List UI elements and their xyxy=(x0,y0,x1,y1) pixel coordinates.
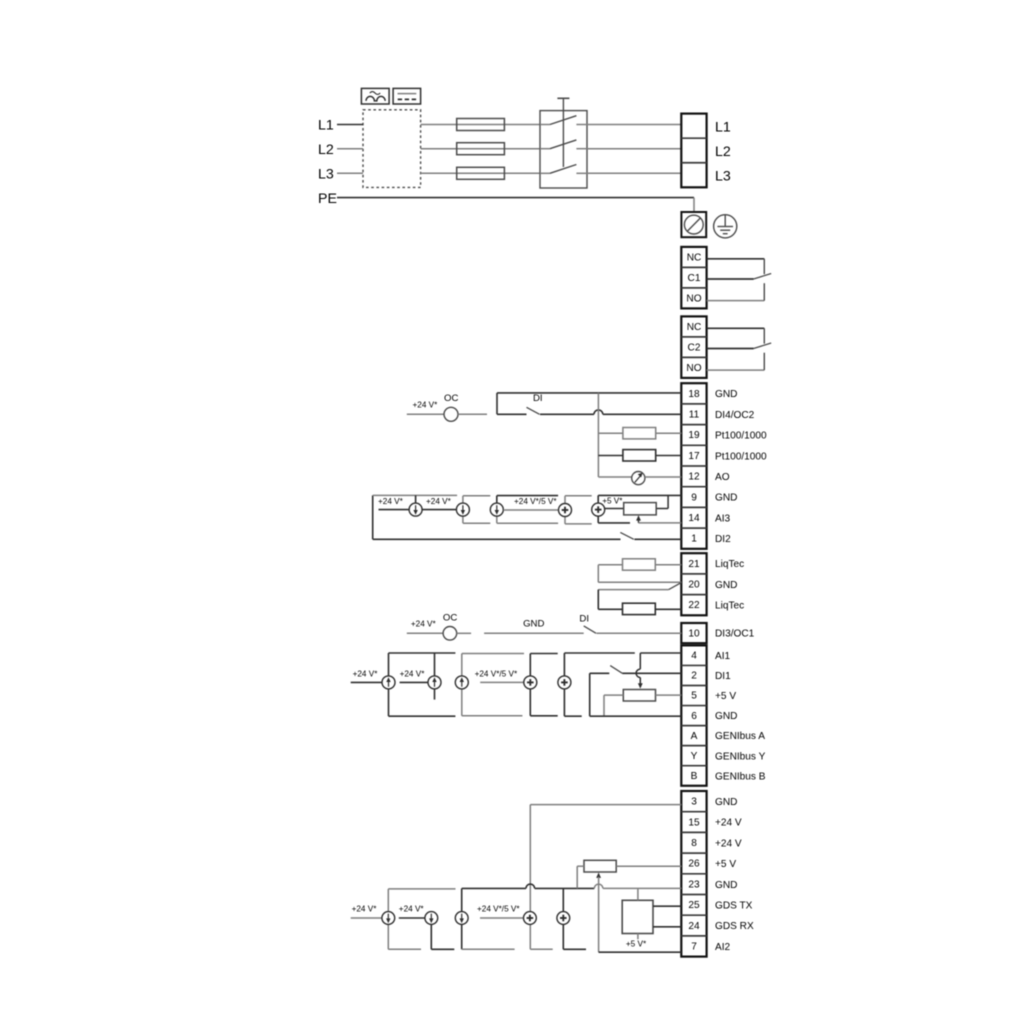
svg-text:5: 5 xyxy=(691,691,697,702)
svg-text:+24 V*: +24 V* xyxy=(426,497,452,506)
svg-text:NO: NO xyxy=(686,293,701,304)
svg-text:AI3: AI3 xyxy=(715,513,731,524)
svg-text:GENIbus A: GENIbus A xyxy=(715,731,765,742)
svg-text:8: 8 xyxy=(691,838,697,849)
svg-text:GND: GND xyxy=(715,880,737,891)
svg-text:+24 V: +24 V xyxy=(715,818,742,829)
svg-text:DI4/OC2: DI4/OC2 xyxy=(715,410,755,421)
svg-text:GND: GND xyxy=(715,711,737,722)
svg-text:+24 V*: +24 V* xyxy=(411,619,437,628)
svg-text:DI3/OC1: DI3/OC1 xyxy=(715,629,755,640)
svg-text:24: 24 xyxy=(688,921,700,932)
svg-text:7: 7 xyxy=(691,941,697,952)
svg-text:GDS TX: GDS TX xyxy=(715,900,753,911)
svg-text:+24 V*/5 V*: +24 V*/5 V* xyxy=(475,669,518,678)
svg-text:14: 14 xyxy=(688,513,700,524)
svg-text:9: 9 xyxy=(691,492,697,503)
svg-text:18: 18 xyxy=(688,389,700,400)
svg-text:+24 V*: +24 V* xyxy=(400,669,426,678)
svg-text:+24 V: +24 V xyxy=(715,838,742,849)
svg-text:Pt100/1000: Pt100/1000 xyxy=(715,431,767,442)
svg-text:+24 V*: +24 V* xyxy=(413,401,439,410)
svg-text:L1: L1 xyxy=(715,119,731,135)
svg-text:GENIbus B: GENIbus B xyxy=(715,771,766,782)
svg-text:AI1: AI1 xyxy=(715,651,731,662)
svg-text:DI: DI xyxy=(579,613,589,624)
svg-text:GND: GND xyxy=(715,389,737,400)
svg-text:OC: OC xyxy=(444,393,458,404)
svg-text:10: 10 xyxy=(688,628,700,639)
svg-text:Pt100/1000: Pt100/1000 xyxy=(715,451,767,462)
svg-text:3: 3 xyxy=(691,797,697,808)
svg-text:12: 12 xyxy=(688,472,700,483)
svg-text:+24 V*: +24 V* xyxy=(352,905,378,914)
svg-text:NC: NC xyxy=(687,322,702,333)
svg-text:20: 20 xyxy=(688,579,700,590)
svg-text:4: 4 xyxy=(691,651,697,662)
svg-text:+24 V*: +24 V* xyxy=(353,669,379,678)
svg-text:23: 23 xyxy=(688,879,700,890)
svg-text:17: 17 xyxy=(688,451,700,462)
svg-text:21: 21 xyxy=(688,559,700,570)
svg-text:+24 V*: +24 V* xyxy=(399,905,425,914)
svg-text:LiqTec: LiqTec xyxy=(715,559,744,570)
svg-text:+5 V*: +5 V* xyxy=(602,497,623,506)
svg-text:GENIbus Y: GENIbus Y xyxy=(715,751,766,762)
svg-text:L1: L1 xyxy=(318,118,334,134)
svg-text:11: 11 xyxy=(689,409,700,420)
svg-text:+24 V*/5 V*: +24 V*/5 V* xyxy=(514,497,557,506)
svg-text:+5 V: +5 V xyxy=(715,691,736,702)
svg-text:GND: GND xyxy=(523,618,544,629)
svg-text:C1: C1 xyxy=(688,273,701,284)
svg-text:19: 19 xyxy=(688,430,700,441)
svg-text:DI2: DI2 xyxy=(715,534,731,545)
svg-text:6: 6 xyxy=(691,711,697,722)
svg-text:GND: GND xyxy=(715,493,737,504)
svg-text:1: 1 xyxy=(691,534,697,545)
svg-text:L2: L2 xyxy=(318,142,334,158)
svg-text:GND: GND xyxy=(715,580,737,591)
svg-text:AI2: AI2 xyxy=(715,942,731,953)
svg-text:2: 2 xyxy=(691,671,697,682)
svg-text:+24 V*: +24 V* xyxy=(378,497,404,506)
svg-text:Y: Y xyxy=(691,751,698,762)
svg-text:+5 V: +5 V xyxy=(715,859,736,870)
svg-text:22: 22 xyxy=(688,600,700,611)
svg-text:PE: PE xyxy=(318,191,337,207)
svg-text:OC: OC xyxy=(443,612,457,623)
svg-text:L3: L3 xyxy=(715,169,731,185)
svg-text:25: 25 xyxy=(688,900,700,911)
svg-text:C2: C2 xyxy=(688,342,701,353)
svg-text:GDS RX: GDS RX xyxy=(715,921,754,932)
svg-text:L2: L2 xyxy=(715,144,731,160)
svg-text:+24 V*/5 V*: +24 V*/5 V* xyxy=(477,905,520,914)
svg-text:AO: AO xyxy=(715,472,730,483)
svg-text:A: A xyxy=(691,731,698,742)
svg-text:GND: GND xyxy=(715,797,737,808)
svg-text:DI: DI xyxy=(533,393,543,404)
svg-text:+5 V*: +5 V* xyxy=(626,940,647,949)
svg-text:26: 26 xyxy=(688,859,700,870)
svg-text:B: B xyxy=(691,771,698,782)
svg-text:15: 15 xyxy=(688,817,700,828)
svg-text:NO: NO xyxy=(686,363,701,374)
svg-text:DI1: DI1 xyxy=(715,671,731,682)
svg-text:NC: NC xyxy=(687,252,702,263)
svg-text:L3: L3 xyxy=(318,167,334,183)
svg-text:LiqTec: LiqTec xyxy=(715,601,744,612)
